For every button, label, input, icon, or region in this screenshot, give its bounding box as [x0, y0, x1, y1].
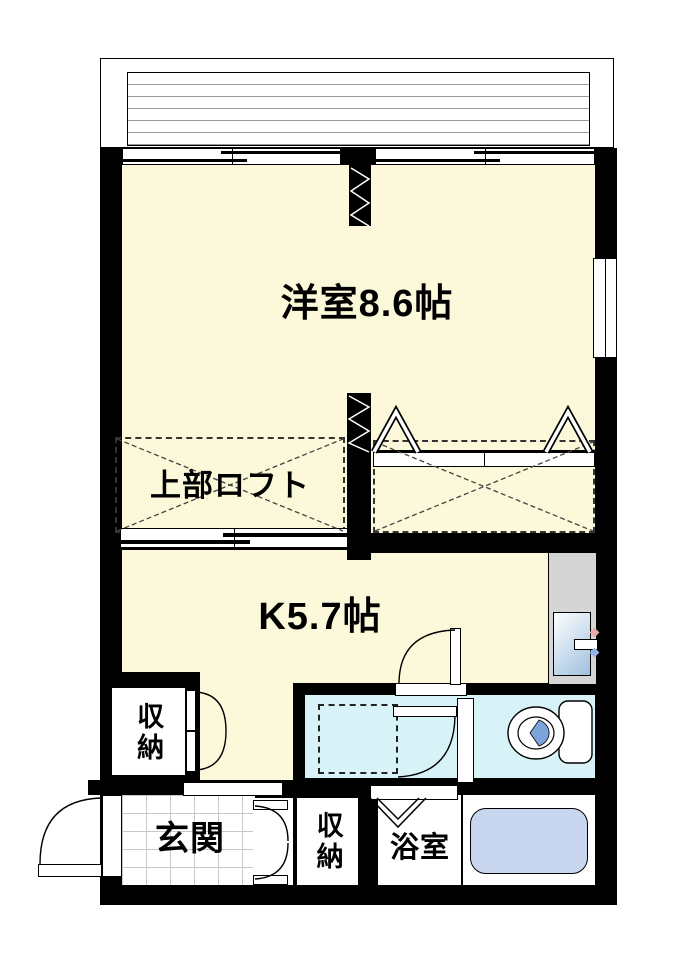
- entrance-closet-door-leaf: [253, 800, 288, 810]
- window-divider: [234, 529, 235, 547]
- balcony-deck: [127, 72, 590, 146]
- window-sash: [474, 151, 594, 154]
- pillar-mid: [347, 393, 371, 560]
- toilet-door-leaf: [393, 706, 457, 717]
- kitchen-storage-label: 収納: [118, 692, 178, 774]
- pillar-top: [349, 165, 371, 226]
- corridor-floor: [200, 683, 293, 780]
- bathtub: [470, 808, 588, 874]
- entrance-door-leaf: [38, 864, 102, 877]
- window-top-right: [375, 148, 595, 165]
- loft-label: 上部ロフト: [130, 468, 330, 504]
- entrance-storage-label: 収納: [300, 801, 355, 883]
- entrance-wall-stub: [88, 780, 102, 795]
- kitchen-closet-door-leaf: [186, 731, 196, 772]
- mid-wall-right: [371, 533, 595, 553]
- floorplan-canvas: 洋室8.6帖 上部ロフト K5.7帖 収納 収納 玄関 浴室: [0, 0, 688, 971]
- window-sash: [221, 151, 340, 154]
- bathroom-label: 浴室: [380, 830, 460, 866]
- kitchen-closet-door-leaf: [186, 690, 196, 731]
- entrance-closet-door-leaf: [253, 875, 288, 885]
- entrance-label: 玄関: [130, 820, 250, 860]
- western-room-label: 洋室8.6帖: [192, 283, 542, 327]
- toilet-partition-stub: [457, 698, 474, 783]
- kitchen-label: K5.7帖: [220, 596, 420, 640]
- window-divider: [484, 453, 485, 466]
- window-divider: [485, 149, 486, 164]
- entrance-door-jamb: [102, 795, 122, 877]
- washer-space: [318, 704, 398, 774]
- window-top-left: [122, 148, 341, 165]
- sliding-door-loft: [120, 528, 348, 550]
- entrance-closet-doorzone: [253, 798, 293, 885]
- window-right-wall: [593, 258, 617, 358]
- kitchen-door-leaf: [450, 628, 461, 685]
- bathroom-divider-wall: [461, 795, 463, 885]
- window-sash: [223, 533, 347, 537]
- bathroom-threshold: [370, 785, 458, 800]
- window-loft-right: [373, 450, 595, 467]
- window-sash: [123, 159, 247, 162]
- window-sash: [121, 540, 250, 544]
- window-divider: [605, 259, 606, 357]
- entrance-door-arc: [40, 798, 101, 864]
- entrance-step-threshold: [183, 782, 283, 796]
- window-divider: [232, 149, 233, 164]
- window-sash: [376, 159, 500, 162]
